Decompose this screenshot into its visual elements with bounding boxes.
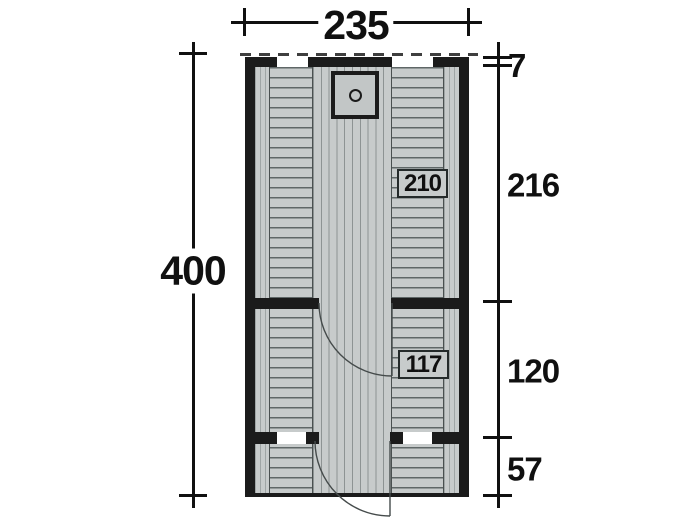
sauna-room-tag: 210 — [397, 169, 448, 198]
width-dim-tick-right — [467, 8, 470, 36]
stove-vent-icon — [349, 89, 362, 102]
right-dim-tick-bottom — [483, 494, 512, 497]
left-bench — [269, 67, 313, 493]
front-wall-segment-left — [245, 432, 277, 444]
room-depth-label: 120 — [507, 355, 559, 388]
left-bench-edge-strip — [255, 67, 269, 493]
rest-room-tag: 117 — [398, 350, 449, 379]
left-wall — [245, 57, 255, 497]
terrace-front-edge — [245, 493, 469, 497]
width-dim-label: 235 — [318, 3, 393, 48]
right-wall — [459, 57, 469, 497]
partition-wall-right-segment — [391, 298, 469, 309]
front-wall-door-post-right — [390, 432, 403, 444]
roof-outline-dashed-line — [240, 53, 478, 56]
front-wall-segment-right — [432, 432, 469, 444]
center-floor-planks — [313, 67, 391, 493]
front-window-right — [403, 432, 432, 444]
partition-wall-left-segment — [245, 298, 319, 309]
terrace-depth-label: 57 — [507, 453, 542, 486]
sauna-depth-label: 216 — [507, 169, 559, 202]
right-dim-tick-sauna — [483, 300, 512, 303]
cabin-interior — [255, 67, 459, 493]
floor-plan-canvas: 235 400 7 216 120 57 210 117 — [0, 0, 700, 525]
stove-icon — [331, 71, 379, 119]
height-dim-tick-top — [179, 52, 207, 55]
right-bench — [391, 67, 444, 493]
height-dim-label: 400 — [155, 249, 230, 294]
right-bench-edge-strip — [444, 67, 459, 493]
height-dim-tick-bottom — [179, 494, 207, 497]
right-dim-tick-room — [483, 436, 512, 439]
front-wall-door-post-left — [306, 432, 319, 444]
width-dim-tick-left — [243, 8, 246, 36]
overhang-dim-label: 7 — [508, 49, 525, 82]
back-wall-segment-middle — [308, 57, 392, 67]
front-window-left — [277, 432, 306, 444]
